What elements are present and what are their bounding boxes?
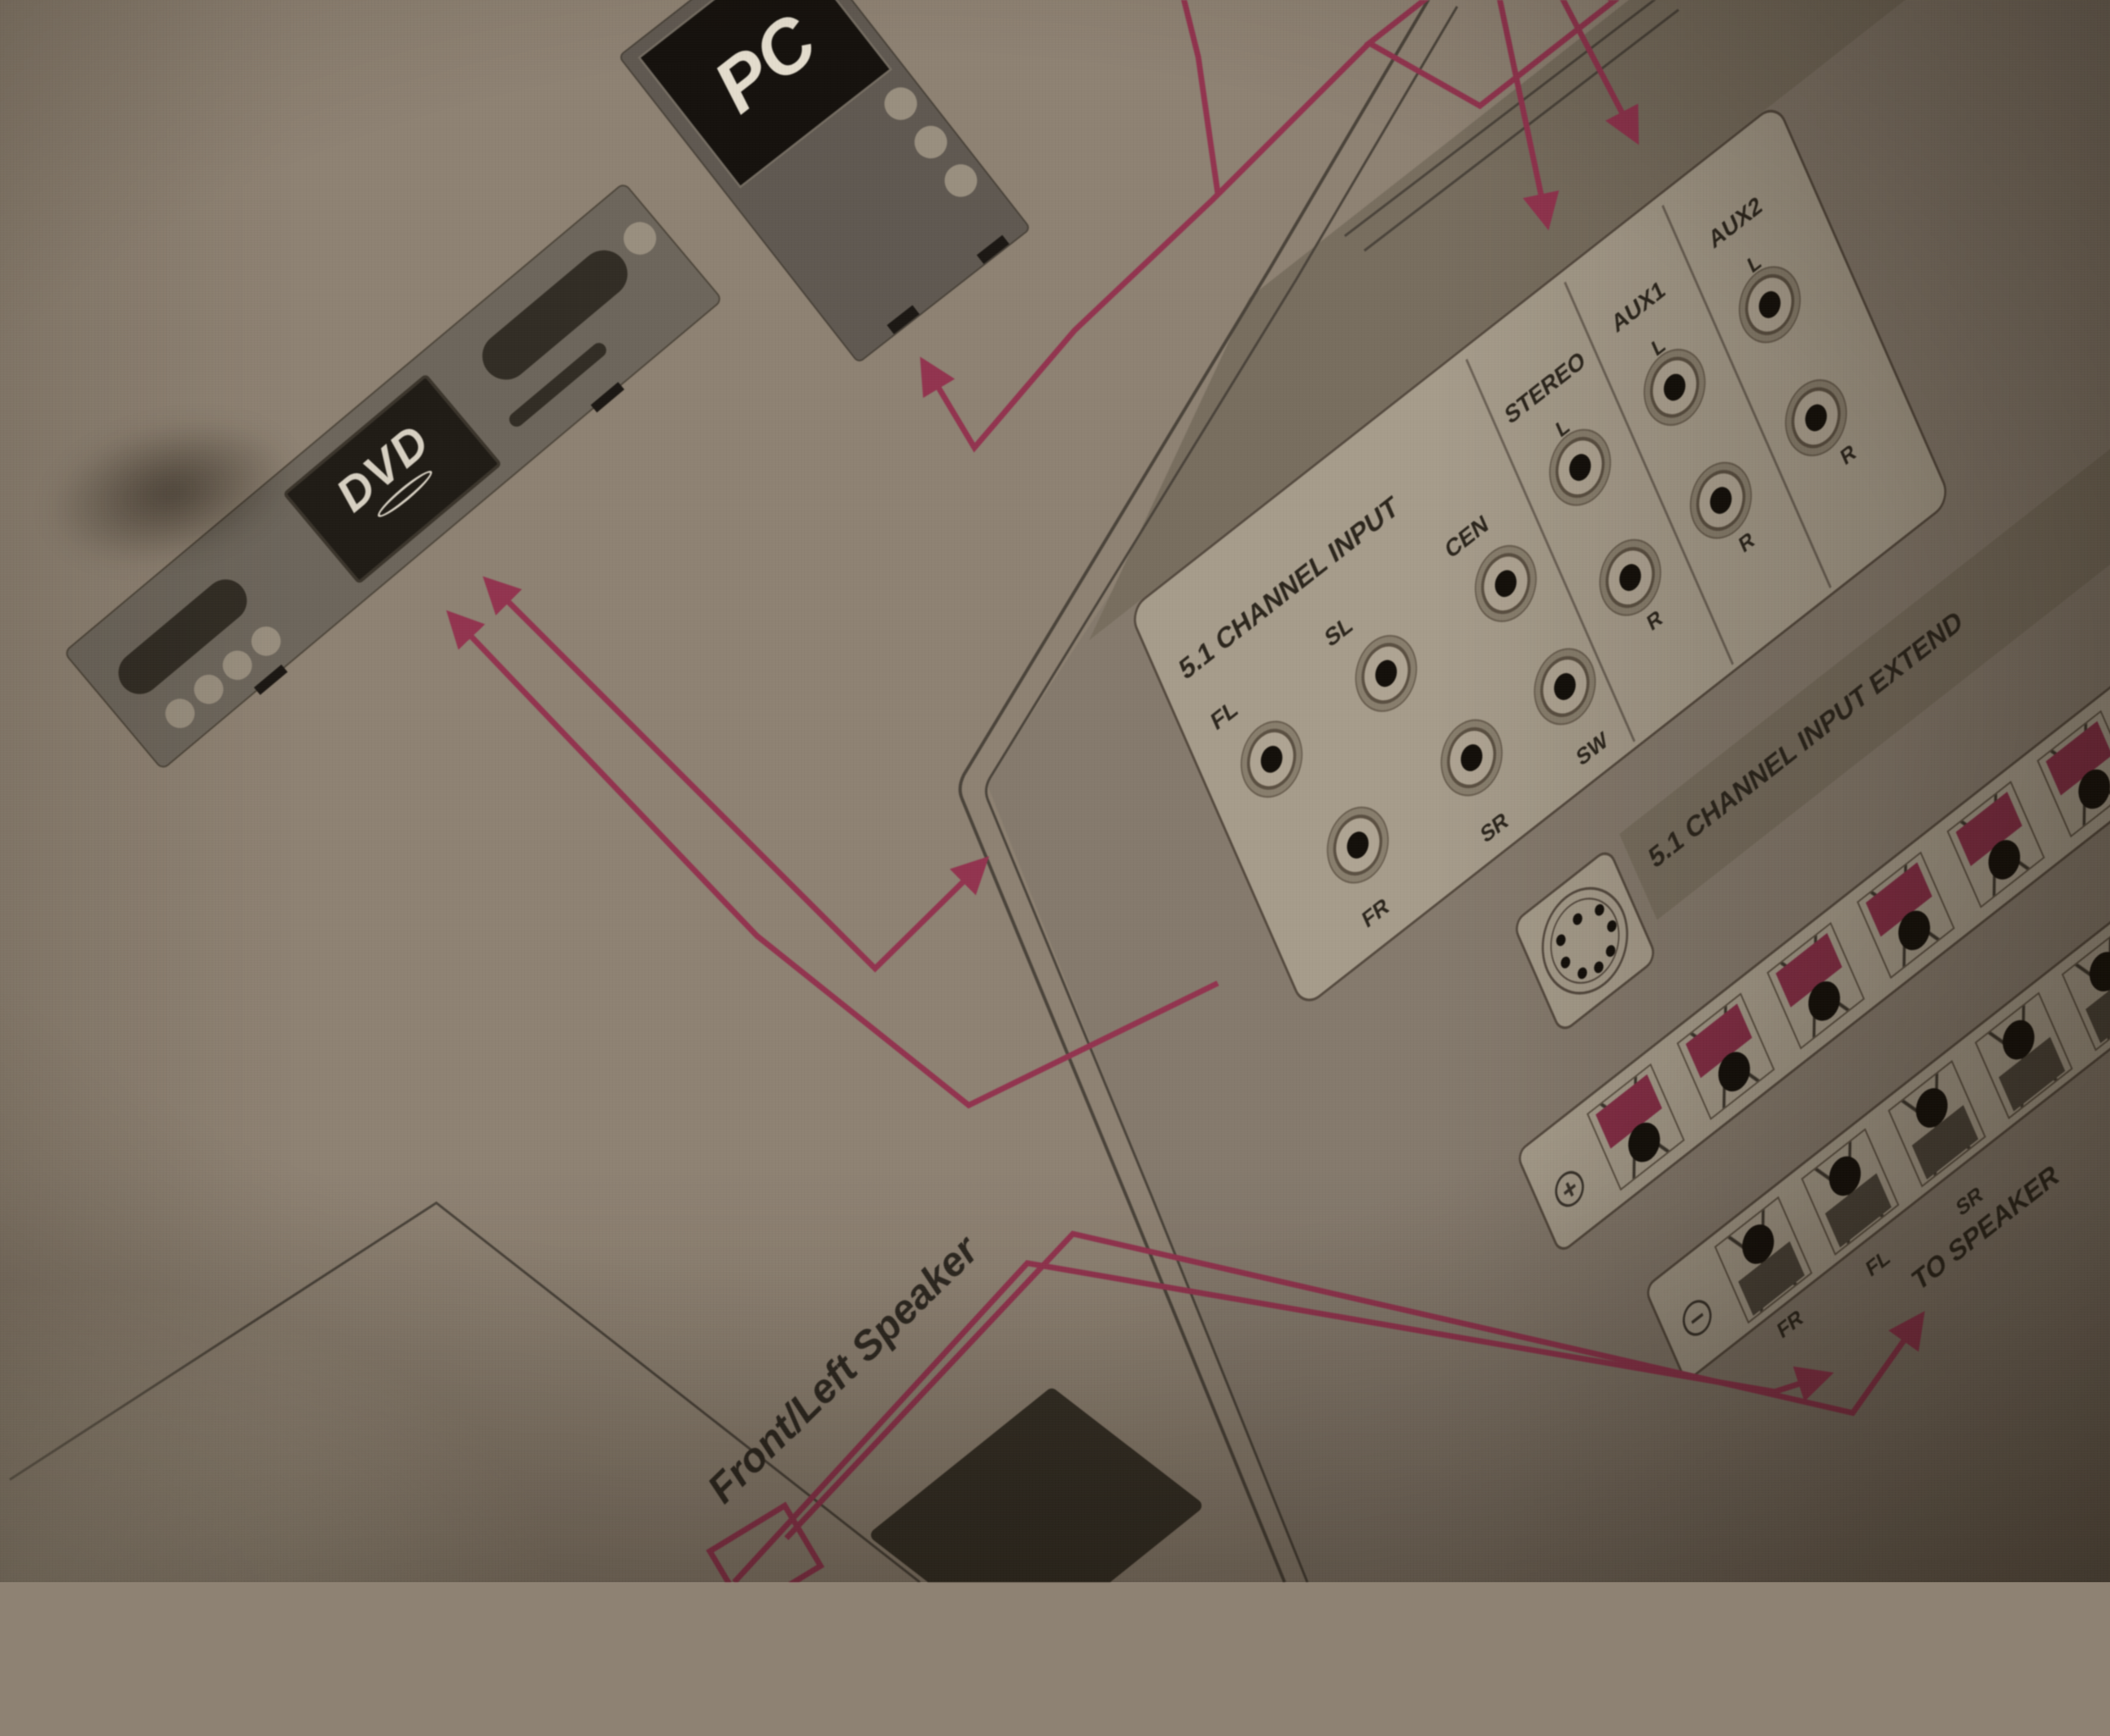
photo-grain <box>0 0 2110 1582</box>
